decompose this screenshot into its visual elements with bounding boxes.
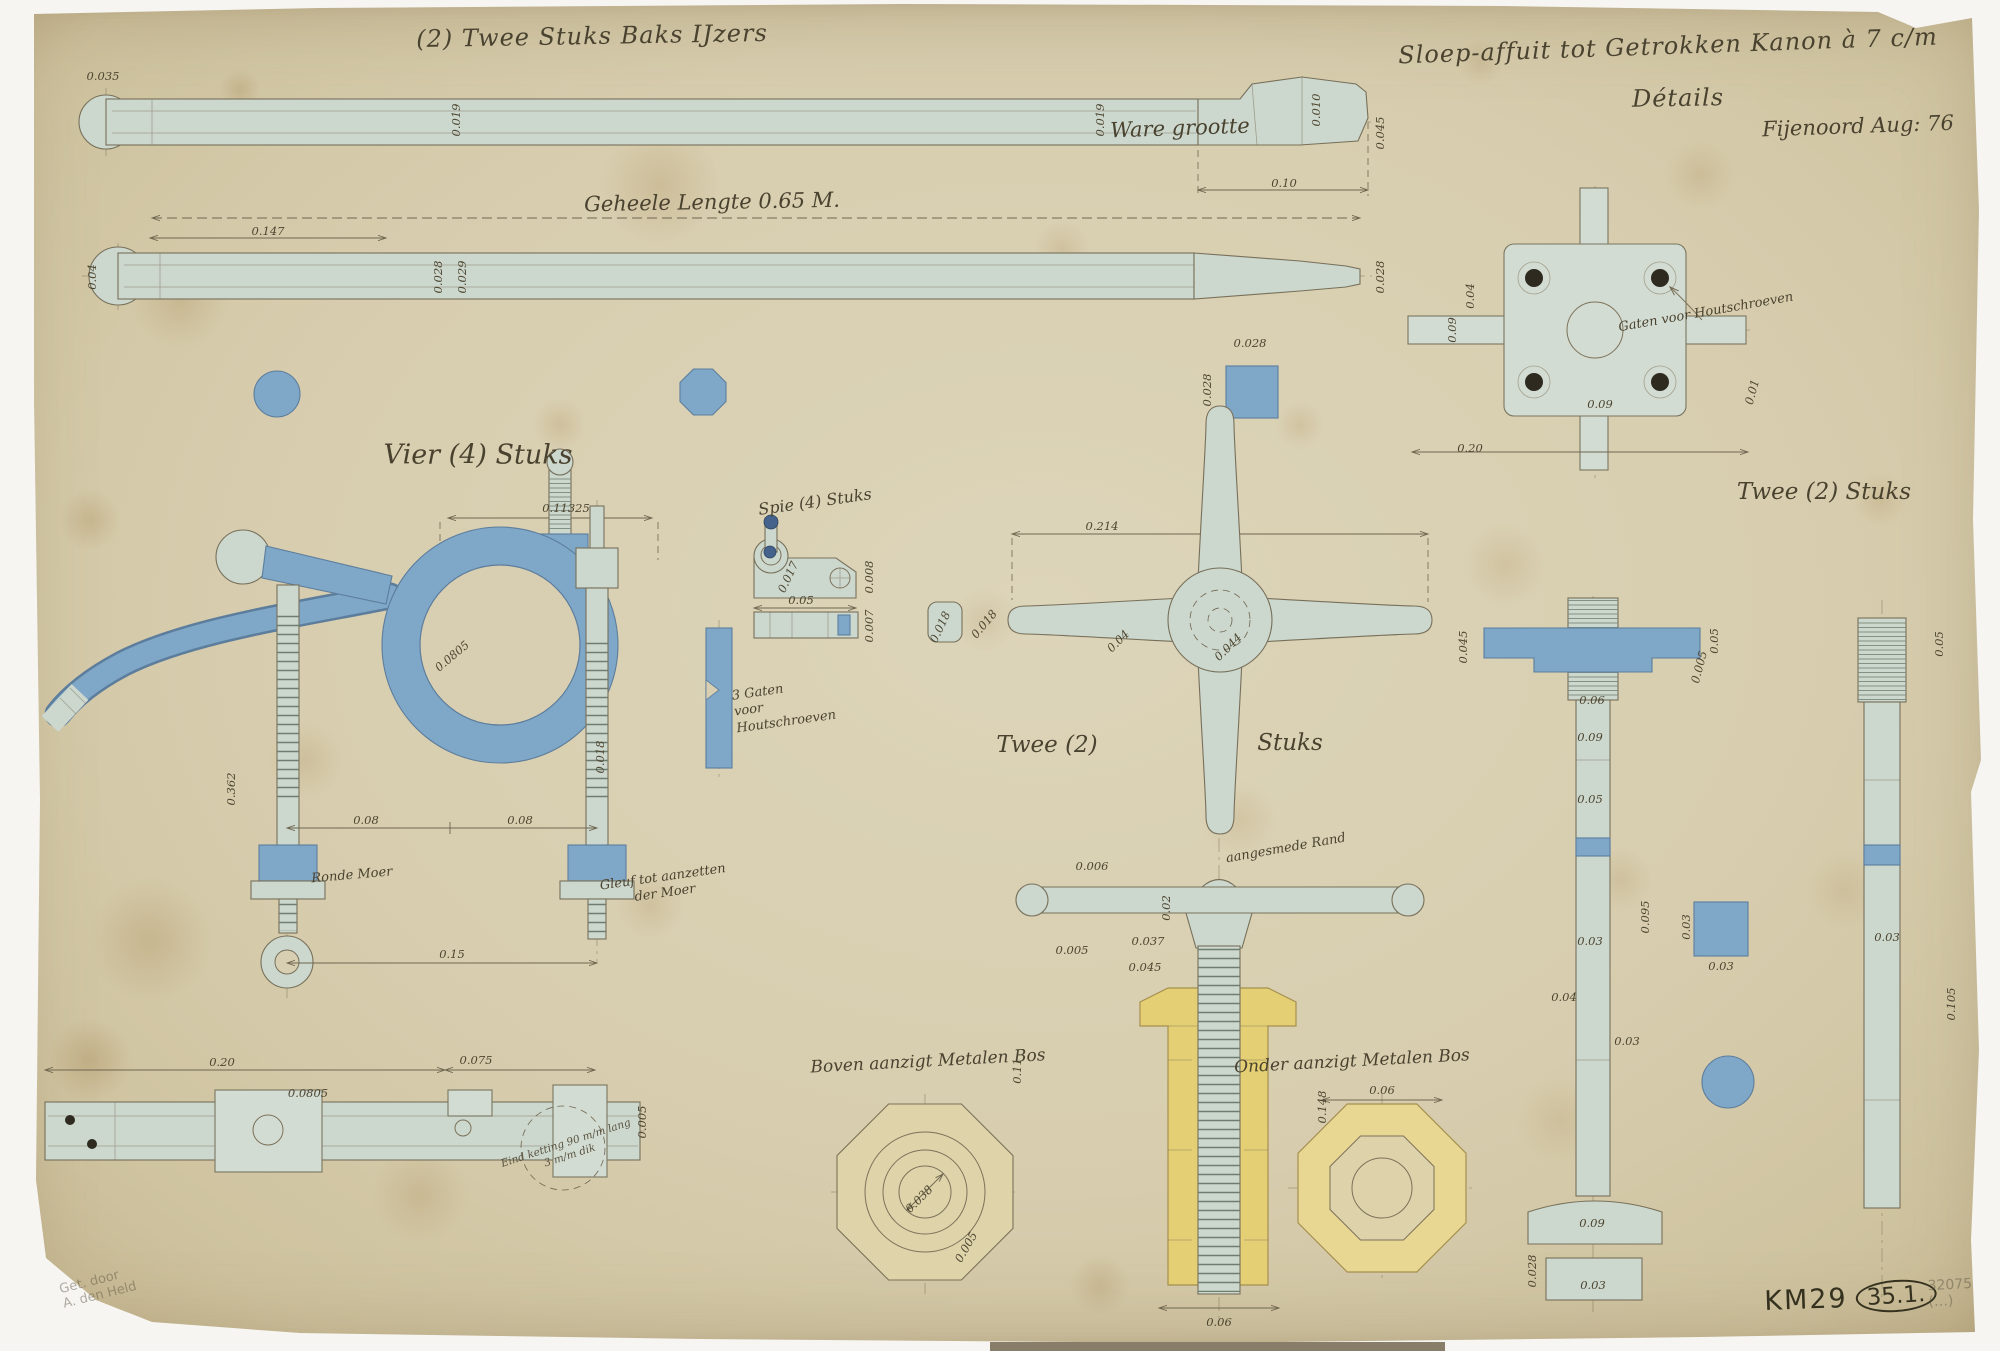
dim-label: 0.005 bbox=[1056, 943, 1089, 957]
dim-label: 0.11325 bbox=[542, 501, 590, 515]
dim-label: 0.007 bbox=[862, 610, 876, 643]
dim-label: 0.028 bbox=[1373, 261, 1387, 294]
dim-label: 0.006 bbox=[1076, 859, 1109, 873]
stamp-km: KM29 bbox=[1764, 1283, 1848, 1317]
bak-iron-bar-2 bbox=[89, 247, 1360, 305]
dim-label: 0.362 bbox=[224, 773, 238, 806]
dim-label: 0.008 bbox=[862, 561, 876, 594]
dim-label: 0.035 bbox=[87, 69, 120, 83]
dim-label: 0.08 bbox=[353, 813, 379, 827]
dim-label: 0.09 bbox=[1445, 317, 1459, 343]
dim-label: 0.028 bbox=[431, 261, 445, 294]
dim-label: 0.147 bbox=[252, 224, 285, 238]
eye-pin-1 bbox=[1484, 598, 1754, 1300]
title-subtitle: Détails bbox=[1632, 83, 1725, 113]
pencil-number: 32075 (…) bbox=[1927, 1276, 1977, 1310]
overall-length-label: Geheele Lengte 0.65 M. bbox=[584, 188, 840, 216]
dim-label: 0.04 bbox=[1463, 283, 1477, 309]
dim-label: 0.03 bbox=[1679, 914, 1693, 940]
dim-label: 0.029 bbox=[455, 261, 469, 294]
scanned-drawing: (2) Twee Stuks Baks IJzers Sloep-affuit … bbox=[0, 0, 2000, 1351]
dim-label: 0.018 bbox=[593, 741, 607, 774]
dim-label: 0.095 bbox=[1638, 901, 1652, 934]
dim-label: 0.06 bbox=[1369, 1083, 1395, 1097]
label-twee-left: Twee (2) bbox=[996, 732, 1097, 758]
eye-pin-2 bbox=[1858, 618, 1906, 1208]
dim-label: 0.028 bbox=[1525, 1255, 1539, 1288]
dim-label: 0.105 bbox=[1944, 988, 1958, 1021]
dim-label: 0.09 bbox=[1587, 397, 1613, 411]
label-twee-stuks-right: Twee (2) Stuks bbox=[1737, 479, 1911, 505]
dim-label: 0.02 bbox=[1159, 895, 1173, 921]
section-shapes bbox=[254, 366, 1278, 418]
label-stuks-right: Stuks bbox=[1257, 730, 1323, 756]
dim-label: 0.03 bbox=[1580, 1278, 1606, 1292]
label-vier-stuks: Vier (4) Stuks bbox=[384, 440, 573, 471]
dim-label: 0.03 bbox=[1577, 934, 1603, 948]
dim-label: 0.20 bbox=[1457, 441, 1483, 455]
dim-label: 0.03 bbox=[1614, 1034, 1640, 1048]
dim-label: 0.0805 bbox=[288, 1086, 328, 1100]
scan-background-strip bbox=[990, 1342, 1445, 1351]
dim-label: 0.20 bbox=[209, 1055, 235, 1069]
dim-label: 0.214 bbox=[1086, 519, 1119, 533]
dim-label: 0.010 bbox=[1309, 94, 1323, 127]
dim-label: 0.037 bbox=[1132, 934, 1165, 948]
dim-label: 0.11 bbox=[1010, 1058, 1024, 1084]
dim-label: 0.019 bbox=[1093, 104, 1107, 137]
dim-label: 0.148 bbox=[1315, 1091, 1329, 1124]
dim-label: 0.06 bbox=[1206, 1315, 1232, 1329]
wing-bolt-top-view bbox=[1008, 406, 1432, 834]
bush-bottom-view bbox=[1298, 1100, 1466, 1272]
dim-label: 0.028 bbox=[1234, 336, 1267, 350]
bottom-bar-side-view bbox=[45, 1070, 640, 1190]
dim-label: 0.09 bbox=[1579, 1216, 1605, 1230]
dim-label: 0.09 bbox=[1577, 730, 1603, 744]
dim-label: 0.04 bbox=[1551, 990, 1577, 1004]
dim-label: 0.05 bbox=[1932, 631, 1946, 657]
dim-label: 0.08 bbox=[507, 813, 533, 827]
dim-label: 0.028 bbox=[1200, 374, 1214, 407]
dim-label: 0.03 bbox=[1874, 930, 1900, 944]
dim-label: 0.15 bbox=[439, 947, 465, 961]
dim-label: 0.10 bbox=[1271, 176, 1297, 190]
dim-label: 0.045 bbox=[1456, 631, 1470, 664]
dim-label: 0.03 bbox=[1708, 959, 1734, 973]
dim-label: 0.06 bbox=[1579, 693, 1605, 707]
dim-label: 0.05 bbox=[788, 593, 814, 607]
dim-label: 0.005 bbox=[635, 1106, 649, 1139]
dim-label: 0.04 bbox=[85, 264, 99, 290]
scale-note: Ware grootte bbox=[1110, 114, 1250, 143]
cross-base-plate bbox=[1408, 188, 1748, 470]
dim-label: 0.045 bbox=[1373, 117, 1387, 150]
dim-label: 0.05 bbox=[1707, 628, 1721, 654]
dim-label: 0.05 bbox=[1577, 792, 1603, 806]
dim-label: 0.075 bbox=[460, 1053, 493, 1067]
dim-label: 0.045 bbox=[1129, 960, 1162, 974]
dim-label: 0.019 bbox=[449, 104, 463, 137]
